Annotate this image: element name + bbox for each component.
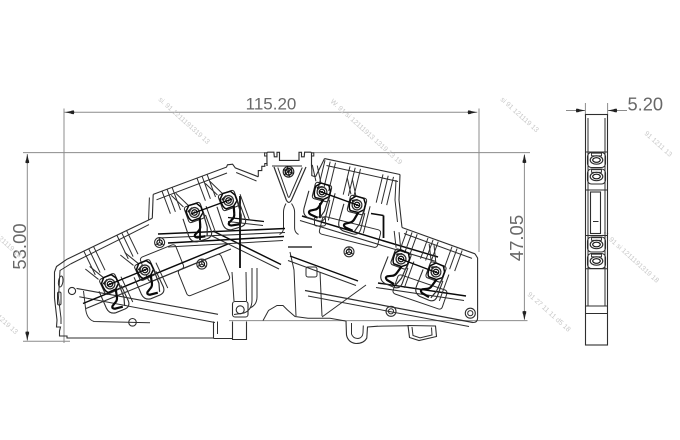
svg-text:si 911219 13: si 911219 13 bbox=[0, 304, 19, 336]
svg-text:91 27 11 11 d5 18: 91 27 11 11 d5 18 bbox=[526, 291, 572, 333]
svg-text:115.20: 115.20 bbox=[246, 95, 297, 114]
svg-text:si. 91 1211191319 13: si. 91 1211191319 13 bbox=[157, 96, 211, 146]
svg-text:5.20: 5.20 bbox=[628, 93, 664, 114]
svg-text:47.05: 47.05 bbox=[506, 215, 527, 261]
svg-text:si 91 121119 13: si 91 121119 13 bbox=[499, 96, 540, 134]
svg-text:si. 91 si 1211191319 18: si. 91 si 1211191319 18 bbox=[601, 230, 660, 284]
svg-text:91 1211 13: 91 1211 13 bbox=[643, 130, 673, 158]
svg-text:W. 91 si 12111913 1319 13 19: W. 91 si 12111913 1319 13 19 bbox=[329, 98, 404, 166]
